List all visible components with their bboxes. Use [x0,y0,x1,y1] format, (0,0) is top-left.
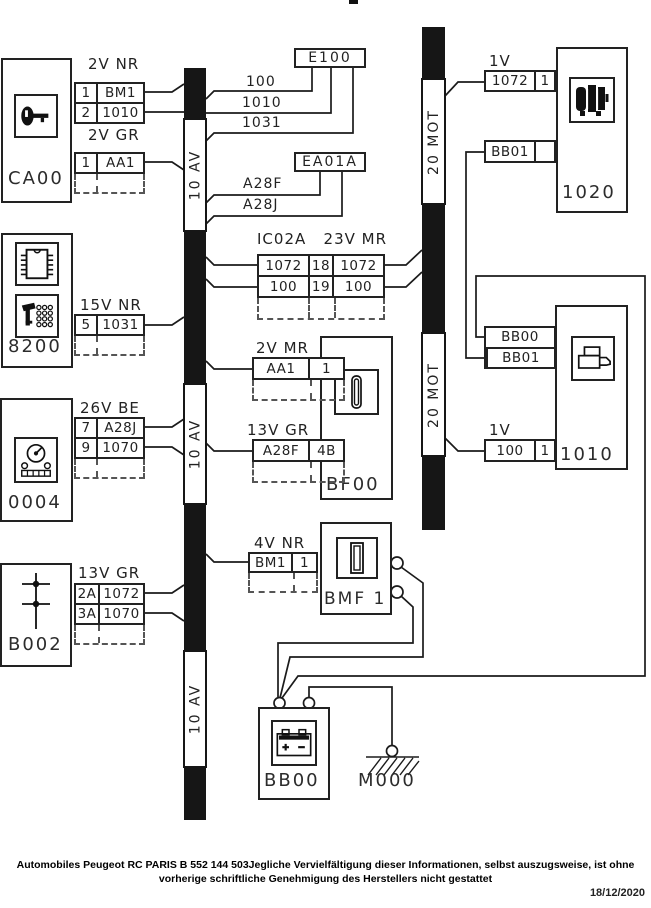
wire-code: AA1 [96,154,143,172]
connector-ca00-2vnr: 1BM1 21010 [74,82,145,124]
wire-code: 1031 [96,316,143,334]
pin-number: 18 [308,256,332,275]
wires-mot-to-units [445,82,484,451]
bus-label-10av-3: 10 AV [183,650,207,768]
pin-number: 19 [308,277,332,296]
node-ea01a: EA01A [294,152,366,172]
wire-code: 1070 [98,605,143,623]
connector-title: 13V GR [78,564,140,582]
bus-label-10av-2: 10 AV [183,383,207,505]
wire-label-a28j: A28J [243,197,279,213]
component-label-1010: 1010 [560,444,614,465]
pin-number: 3A [76,605,98,623]
pin-number: 2A [76,585,98,603]
wire-code: AA1 [254,359,308,378]
component-label-bmf1: BMF 1 [324,589,386,609]
connector-0004-26vbe: 7A28J 91070 [74,417,145,459]
date-stamp: 18/12/2020 [590,887,645,899]
connector-bf00-2vmr: AA11 [252,357,345,380]
battery-icon [271,720,317,766]
wire-code: BB01 [486,142,534,161]
pin-number: 1 [291,554,316,571]
remote-keypad-icon [15,294,59,338]
wiring-diagram: 10 AV 10 AV 10 AV 20 MOT 20 MOT CA00 2V … [0,0,651,908]
ghost-row [252,380,345,401]
component-label-8200: 8200 [8,336,62,357]
wire-label-1031: 1031 [242,115,282,131]
connector-1010-1v: 1001 [484,439,556,462]
pin-number: 7 [76,419,96,437]
pin-number: 5 [76,316,96,334]
wire-code: BM1 [96,84,143,102]
copyright-notice: Automobiles Peugeot RC PARIS B 552 144 5… [8,859,643,886]
bus-label-20mot-1: 20 MOT [421,78,446,205]
ghost-row [74,459,145,479]
pin-number: 4B [308,441,343,460]
wire-label-a28f: A28F [243,176,282,192]
pin-number: 2 [76,104,96,122]
connector-title: 1V [489,52,511,70]
connector-1010-bb: BB00 BB01 [484,326,556,369]
wire-code: A28F [254,441,308,460]
bus-label-20mot-2: 20 MOT [421,332,446,457]
pin-number: 1 [76,84,96,102]
connector-bf00-13vgr: A28F4B [252,439,345,462]
ghost-row [74,336,145,356]
wire-code: 1072 [98,585,143,603]
wire-code: BB00 [486,328,554,347]
connector-title: 13V GR [247,421,309,439]
connector-1020-1v: 10721 [484,70,556,92]
bmf1-terminal-bottom [391,586,403,598]
wire-code: A28J [96,419,143,437]
connector-title: 2V MR [256,339,309,357]
connector-b002-13vgr: 2A1072 3A1070 [74,583,145,625]
connector-title: 26V BE [80,399,140,417]
connector-1020-bb01: BB01 [484,140,556,163]
pin-number: 9 [76,439,96,457]
wires-ic02a-to-mot [385,250,422,287]
chip-icon [15,242,59,286]
wires-into-av-bus [145,84,184,621]
component-label-bb00: BB00 [264,770,320,791]
wire-code: BB01 [486,347,554,368]
component-label-b002: B002 [8,634,63,655]
pin-number: 1 [76,154,96,172]
pin-number: 1 [308,359,343,378]
connector-title: 15V NR [80,296,142,314]
connector-title: 1V [489,421,511,439]
ghost-row [248,573,318,593]
wire-code: 100 [259,277,308,296]
ghost-row [74,625,145,645]
connector-title: 2V GR [88,126,140,144]
component-label-ca00: CA00 [8,168,64,189]
copyright-line2: vorherige schriftliche Genehmigung des H… [8,873,643,887]
wire-code: 1072 [259,256,308,275]
connector-8200-15vnr: 51031 [74,314,145,336]
ic02a-table: 1072 18 1072 100 19 100 [257,254,385,298]
bmf1-terminal-top [391,557,403,569]
pin-number: 1 [534,72,554,90]
ghost-row [74,174,145,194]
wire-label-1010: 1010 [242,95,282,111]
wire-label-100: 100 [246,74,276,90]
wire-bb01-link [466,152,484,358]
wire-code: 1072 [332,256,383,275]
ground-terminal [387,746,398,757]
gauge-icon [14,437,58,483]
component-label-1020: 1020 [562,182,616,203]
bus-label-10av-1: 10 AV [183,118,207,232]
ghost-row [257,298,385,320]
connector-title: 2V NR [88,55,139,73]
component-label-m000: M000 [358,770,416,791]
cropped-title-fragment [349,0,358,4]
wire-code: 1070 [96,439,143,457]
ic02a-title: IC02A 23V MR [257,230,387,248]
component-label-0004: 0004 [8,492,62,513]
copyright-line1: Automobiles Peugeot RC PARIS B 552 144 5… [8,859,643,873]
wire-code: 100 [486,441,534,460]
starter-motor-icon [571,336,615,381]
key-icon [14,94,58,138]
connector-ca00-2vgr: 1AA1 [74,152,145,174]
connector-bmf1-4vnr: BM11 [248,552,318,573]
pin-number: 1 [534,441,554,460]
node-e100: E100 [294,48,366,68]
wire-code: BM1 [250,554,291,571]
wire-code: 1072 [486,72,534,90]
empty-cell [534,142,554,161]
wire-code: 100 [332,277,383,296]
alternator-icon [569,77,615,123]
wire-code: 1010 [96,104,143,122]
maxi-fuse-icon [336,537,378,579]
connector-title: 4V NR [254,534,305,552]
ghost-row [252,462,345,483]
